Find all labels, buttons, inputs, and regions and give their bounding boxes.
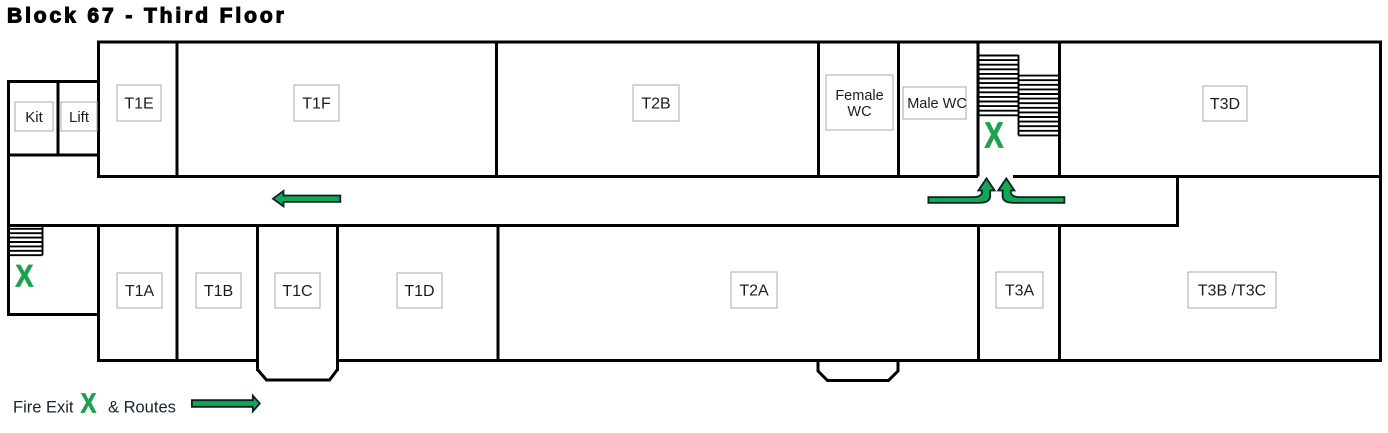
svg-text:T3D: T3D — [1210, 96, 1240, 113]
svg-text:T1D: T1D — [404, 283, 434, 300]
svg-text:T3B /T3C: T3B /T3C — [1198, 283, 1266, 300]
svg-text:T1B: T1B — [204, 283, 233, 300]
svg-text:X: X — [15, 258, 33, 294]
svg-text:& Routes: & Routes — [108, 399, 176, 417]
svg-text:Fire Exit: Fire Exit — [13, 399, 74, 417]
svg-text:Block 67 - Third Floor: Block 67 - Third Floor — [7, 5, 287, 28]
svg-text:T1F: T1F — [302, 96, 331, 113]
svg-text:X: X — [985, 115, 1004, 156]
svg-text:Lift: Lift — [69, 109, 90, 126]
svg-text:Kit: Kit — [25, 109, 43, 126]
svg-text:T3A: T3A — [1005, 283, 1035, 300]
svg-text:X: X — [81, 388, 97, 419]
svg-text:T1A: T1A — [125, 283, 155, 300]
svg-text:WC: WC — [847, 104, 871, 120]
svg-text:T2B: T2B — [641, 96, 670, 113]
svg-text:Female: Female — [835, 88, 883, 104]
svg-text:T1E: T1E — [124, 96, 153, 113]
svg-text:T1C: T1C — [282, 283, 312, 300]
svg-text:T2A: T2A — [739, 283, 769, 300]
svg-text:Male WC: Male WC — [907, 96, 967, 112]
